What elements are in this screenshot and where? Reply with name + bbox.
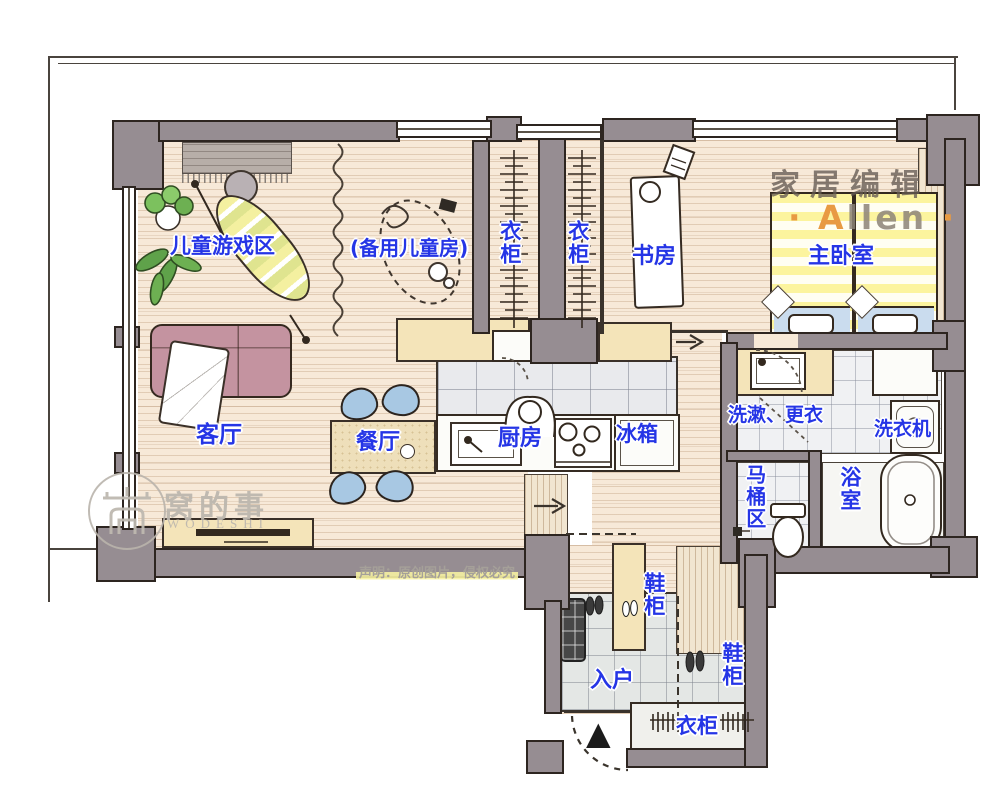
bed-right-pillow [872,314,918,334]
study-partition-line [600,140,604,334]
watermark-logo-glyph [100,484,154,538]
washbasin-inner [756,358,800,384]
label-closet-a: 衣柜 [498,220,520,266]
bed-left-pillow [788,314,834,334]
label-entry: 入户 [590,670,634,693]
label-study: 书房 [632,246,676,269]
study-desk [630,175,685,309]
watermark-dot: · [788,198,804,237]
wall-segment [158,120,400,142]
entry-direction-arrow-icon: ▲ [586,714,611,752]
wall-column [524,534,570,610]
wall-segment [530,318,598,364]
label-dining-room: 餐厅 [356,432,400,455]
copyright-disclaimer: 声明：原创图片，侵权必究 [356,562,518,581]
label-play-area: 儿童游戏区 [170,236,275,258]
label-toilet-area: 马桶区 [744,464,765,530]
label-shoe-cabinet-a: 鞋柜 [642,572,664,618]
wall-segment [896,118,930,142]
label-bathroom: 浴室 [838,466,860,512]
toilet-wall [726,450,820,462]
entry-left-wall [544,600,562,714]
study-edge-line [672,330,728,333]
wall-corner [526,740,564,774]
window [516,124,602,140]
label-shoe-cabinet-b: 鞋柜 [720,642,742,688]
kitchen-corner-cabinet [492,330,532,362]
toilet-tile-floor [726,462,810,550]
window [396,120,492,138]
label-closet-b: 衣柜 [566,220,588,266]
boundary-connector [48,548,100,550]
window [692,120,898,138]
watermark-author: · Allen · [788,198,957,237]
label-kitchen: 厨房 [498,428,542,451]
watermark-site-latin: WODESHI [167,516,269,532]
shoe-cabinet-a-box [612,543,646,651]
kitchen-tile-floor [436,356,678,420]
label-fridge: 冰箱 [616,424,658,446]
closet-wall [538,136,566,336]
teacup [400,444,415,459]
label-living-room: 客厅 [196,424,242,448]
hallway-cabinet [598,322,672,362]
entry-right-wall [744,554,768,768]
boundary-line-left [48,56,50,602]
label-master-bedroom: 主卧室 [808,246,874,269]
closet-wall [472,140,490,334]
label-spare-kids-room: (备用儿童房) [350,238,468,259]
label-entry-closet: 衣柜 [676,716,718,738]
wall-segment [112,120,164,190]
entry-door-threshold [564,710,630,713]
bath-door-gap [754,334,798,348]
floor-plan-canvas: 家居编辑 · Allen · 窝的事 WODESHI 声明：原创图片，侵权必究 … [0,0,1003,800]
watermark-author-initial: A [818,198,847,237]
rug [182,142,292,174]
laundry-cabinet [872,346,938,396]
stove [554,418,612,468]
toilet-bath-wall [808,450,822,560]
label-washing-machine: 洗衣机 [874,420,931,440]
boundary-line-top [48,56,958,58]
boundary-line-right [954,56,956,110]
watermark-logo-circle [88,472,166,550]
label-washroom: 洗漱、更衣 [728,406,823,426]
hall-low-cabinet [524,474,568,536]
boundary-line-top-inner [58,63,956,64]
watermark-author-rest: llen [847,198,928,237]
wall-segment [602,118,696,142]
watermark-dot: · [942,198,958,237]
